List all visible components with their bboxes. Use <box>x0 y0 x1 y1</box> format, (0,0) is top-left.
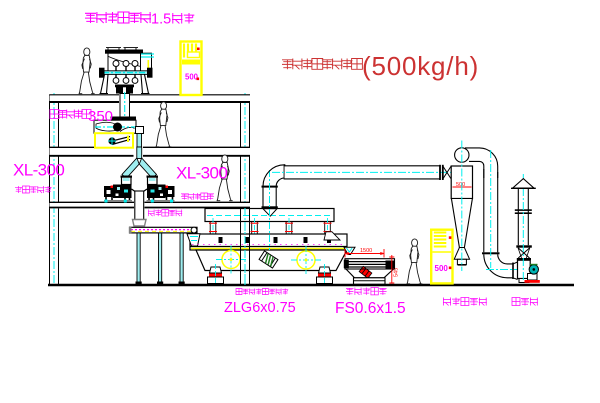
svg-text:XL-300: XL-300 <box>176 164 227 183</box>
svg-text:545: 545 <box>394 268 400 277</box>
svg-text:500: 500 <box>185 73 199 82</box>
svg-text:500: 500 <box>435 264 449 273</box>
svg-text:FS0.6x1.5: FS0.6x1.5 <box>335 300 406 317</box>
svg-text:1.5: 1.5 <box>151 12 171 28</box>
svg-text:500: 500 <box>456 182 465 188</box>
svg-text:XL-300: XL-300 <box>13 161 64 180</box>
svg-text:350: 350 <box>88 108 113 125</box>
svg-text:(500kg/h): (500kg/h) <box>362 51 479 81</box>
svg-text:ZLG6x0.75: ZLG6x0.75 <box>224 300 296 316</box>
